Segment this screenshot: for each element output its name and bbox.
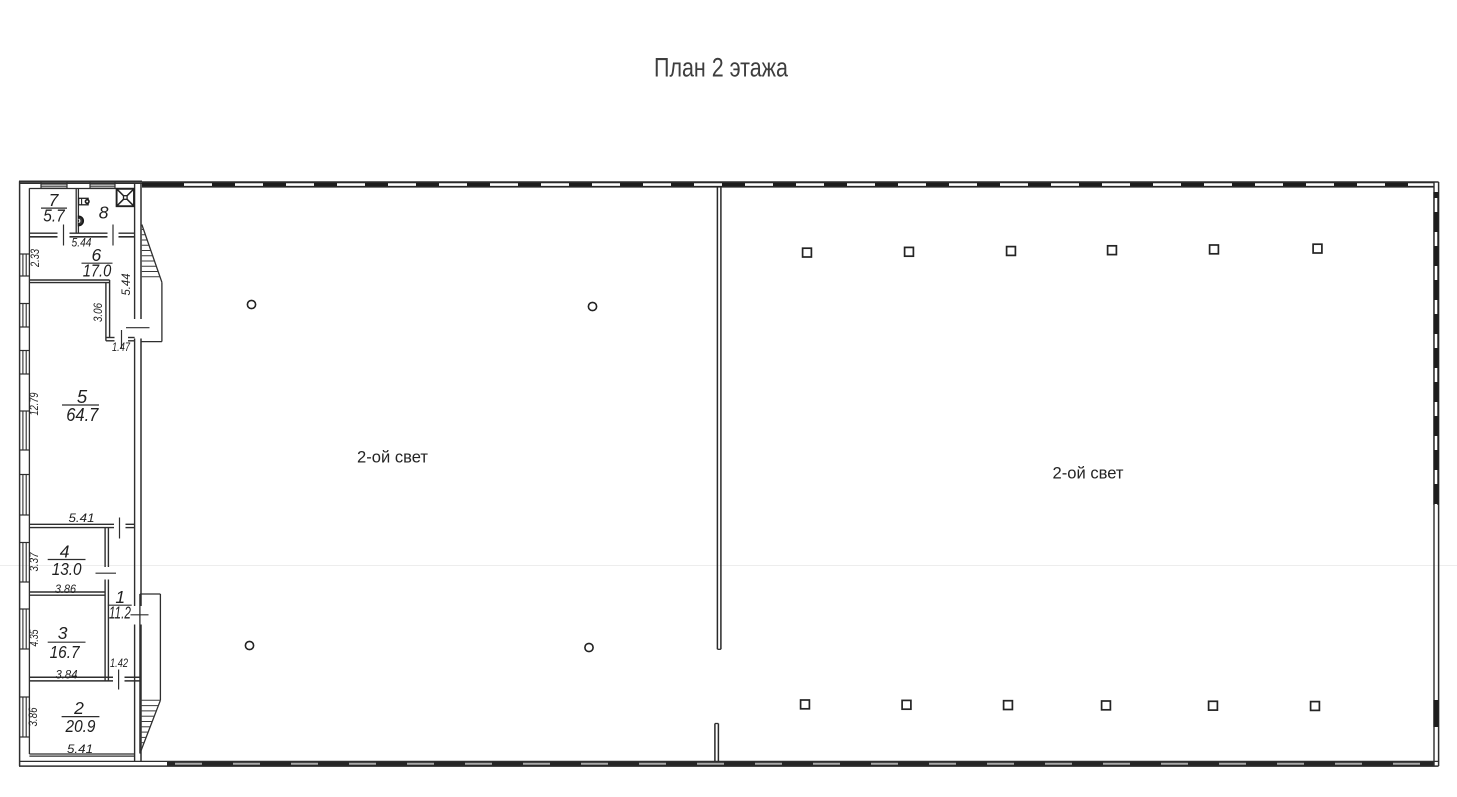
- svg-text:20.9: 20.9: [65, 716, 96, 736]
- svg-text:3.84: 3.84: [56, 668, 78, 682]
- svg-text:3.06: 3.06: [91, 303, 105, 322]
- svg-text:5.7: 5.7: [43, 205, 66, 225]
- svg-text:5.41: 5.41: [69, 511, 95, 525]
- svg-text:17.0: 17.0: [83, 260, 112, 280]
- svg-text:1.47: 1.47: [112, 340, 131, 354]
- svg-text:2-ой свет: 2-ой свет: [357, 448, 428, 467]
- svg-text:11.2: 11.2: [109, 603, 131, 623]
- svg-text:5.41: 5.41: [67, 742, 93, 756]
- svg-text:12.79: 12.79: [27, 392, 41, 415]
- svg-text:2-ой свет: 2-ой свет: [1053, 464, 1124, 483]
- svg-text:5.44: 5.44: [72, 235, 92, 249]
- svg-text:64.7: 64.7: [66, 404, 99, 425]
- svg-text:1.42: 1.42: [110, 656, 128, 670]
- svg-text:13.0: 13.0: [52, 559, 82, 579]
- svg-text:3.37: 3.37: [27, 551, 41, 571]
- svg-text:2: 2: [73, 698, 84, 718]
- svg-text:3.86: 3.86: [26, 707, 40, 726]
- svg-text:4.35: 4.35: [27, 629, 41, 646]
- svg-text:16.7: 16.7: [50, 642, 81, 662]
- svg-text:План 2 этажа: План 2 этажа: [654, 53, 788, 83]
- svg-text:8: 8: [99, 203, 109, 223]
- svg-text:3.86: 3.86: [55, 582, 76, 596]
- svg-text:2.33: 2.33: [28, 249, 42, 268]
- svg-text:5.44: 5.44: [119, 273, 133, 295]
- svg-text:3: 3: [58, 623, 68, 643]
